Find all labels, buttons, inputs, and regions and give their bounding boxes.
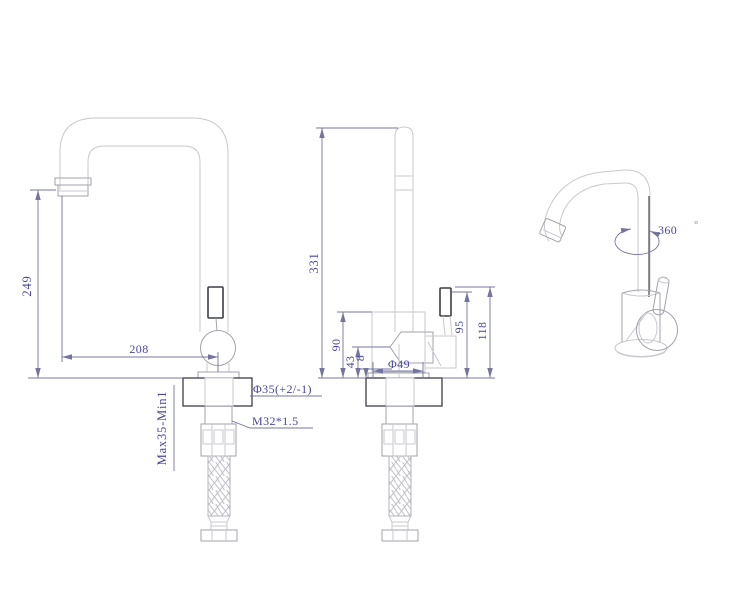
drawing-sheet: 249 208 Φ35(+2/-1) M32*1.5 Max35-Min1: [0, 0, 731, 600]
perspective-spout: [539, 170, 650, 297]
perspective-body: [615, 290, 667, 357]
dim-spout-reach: 208: [129, 342, 148, 356]
front-view: 249 208 Φ35(+2/-1) M32*1.5 Max35-Min1: [20, 118, 322, 541]
dim-base-lip-height: 8: [353, 355, 367, 361]
dim-handle-height: 118: [475, 322, 489, 341]
dim-spout-height: 249: [20, 275, 34, 296]
side-countertop-section: [366, 378, 442, 406]
front-handle: [208, 287, 223, 331]
front-body: [198, 331, 239, 379]
dim-mounting-thickness: Max35-Min1: [155, 391, 169, 466]
front-spout-outline: [55, 118, 228, 332]
perspective-handle: [637, 276, 678, 350]
dim-body-height: 90: [329, 339, 343, 352]
front-countertop-section: [183, 378, 252, 406]
dim-outlet-height: 95: [452, 321, 466, 334]
dim-base-diameter: Φ49: [388, 357, 410, 371]
side-dimensions: 331 90 43 8 Φ49 95 118: [307, 128, 495, 378]
rotation-arrow: 360 °: [615, 219, 698, 255]
drawing-canvas: 249 208 Φ35(+2/-1) M32*1.5 Max35-Min1: [0, 0, 731, 600]
swivel-angle-value: 360: [658, 223, 677, 237]
perspective-view: 360 °: [539, 170, 698, 357]
front-supply-hose: [201, 406, 237, 541]
side-spout-pipe: [395, 127, 413, 332]
swivel-angle-unit: °: [694, 219, 698, 231]
side-body: [368, 312, 456, 380]
dim-hole-diameter: Φ35(+2/-1): [253, 382, 312, 396]
side-view: 331 90 43 8 Φ49 95 118: [307, 127, 495, 541]
side-supply-hose: [382, 406, 418, 541]
front-dimensions: 249 208 Φ35(+2/-1) M32*1.5 Max35-Min1: [20, 190, 322, 471]
side-handle-lever: [440, 288, 452, 335]
dim-thread-spec: M32*1.5: [252, 414, 298, 428]
dim-total-height: 331: [307, 252, 321, 273]
